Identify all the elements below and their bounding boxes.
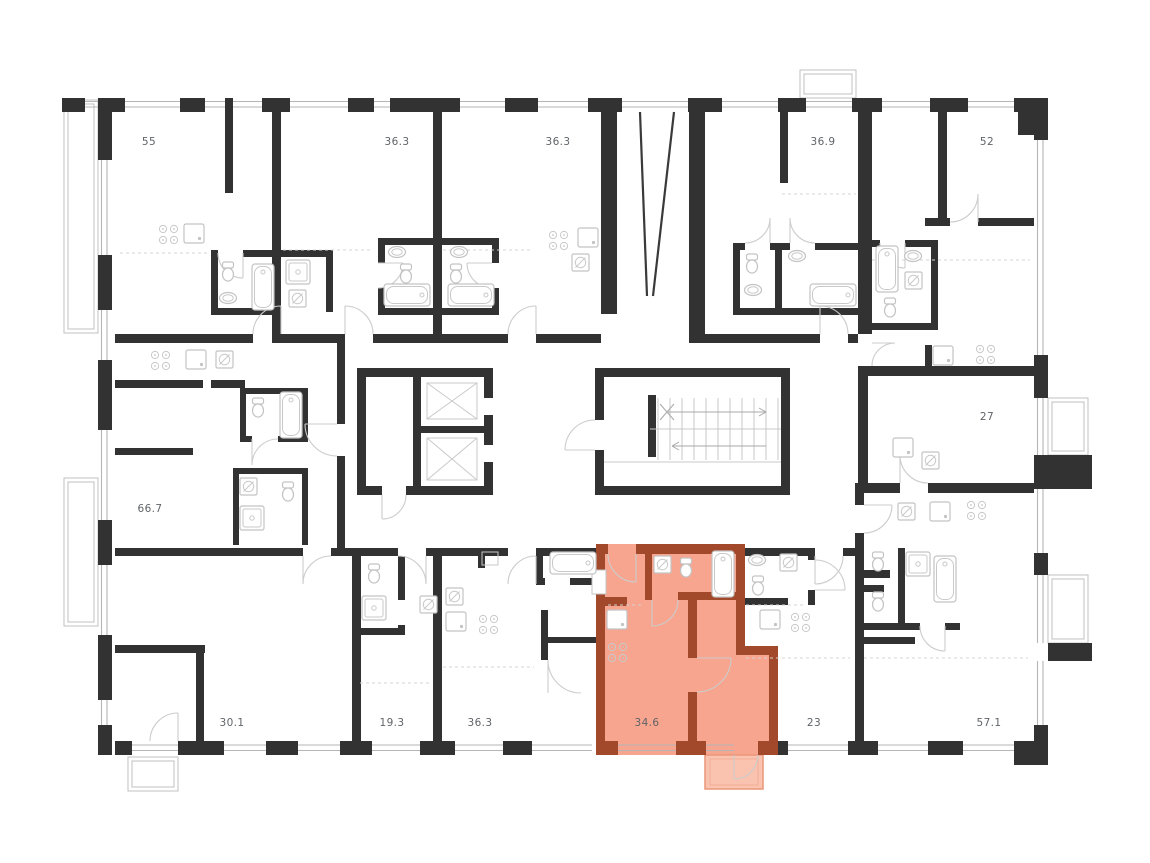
unit-30-1[interactable] <box>112 556 352 741</box>
unit-52[interactable] <box>872 98 1034 368</box>
unit-57-1[interactable] <box>864 493 1034 755</box>
unit-66-7[interactable] <box>112 343 337 548</box>
unit-overlays <box>112 98 1034 755</box>
unit-36-3-bottom[interactable] <box>442 556 596 741</box>
unit-36-3-top-right[interactable] <box>442 98 601 343</box>
unit-27[interactable] <box>868 376 1034 483</box>
floor-plan: 55 36.3 36.3 36.9 52 66.7 27 30.1 19.3 3… <box>0 0 1150 863</box>
unit-23[interactable] <box>743 556 855 741</box>
unit-36-3-top-left[interactable] <box>281 98 433 343</box>
floor-plan-page: 55 36.3 36.3 36.9 52 66.7 27 30.1 19.3 3… <box>0 0 1150 863</box>
unit-36-9[interactable] <box>705 98 858 343</box>
staircase <box>604 398 781 462</box>
unit-55[interactable] <box>112 98 272 343</box>
stair-direction-arrows <box>660 404 766 450</box>
unit-19-3[interactable] <box>361 556 433 741</box>
